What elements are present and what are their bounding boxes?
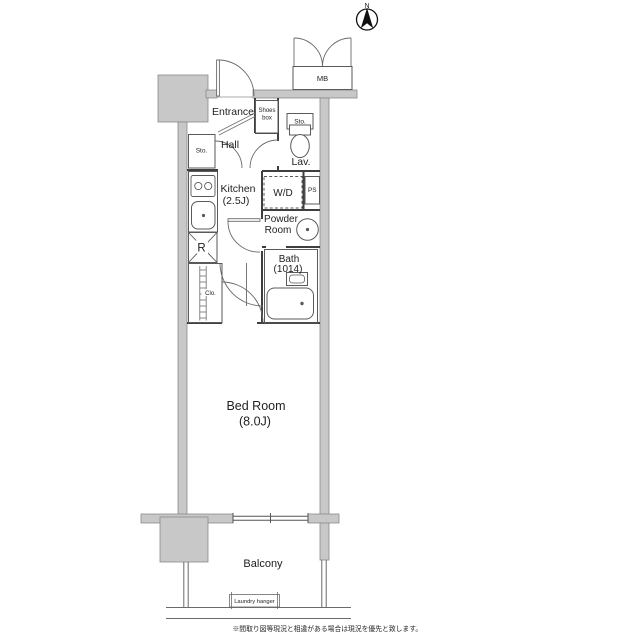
- toilet-tank: [290, 125, 311, 135]
- mb-label: MB: [317, 74, 328, 83]
- floor-plan-image: N: [0, 0, 639, 640]
- fridge-label: R: [197, 243, 205, 255]
- hall-label: Hall: [221, 139, 239, 151]
- compass-north-label: N: [364, 3, 369, 10]
- powder-door-arc: [228, 221, 260, 252]
- bedroom-label-1: Bed Room: [226, 399, 285, 413]
- powder-room-label-1: Powder: [264, 214, 299, 225]
- structural-walls: [141, 75, 357, 562]
- balcony-label: Balcony: [243, 558, 283, 570]
- powder-door-leaf: [228, 219, 260, 222]
- entrance-door-arc: [218, 60, 254, 96]
- powder-basin-drain: [306, 228, 308, 230]
- floor-plan-svg: N: [0, 0, 639, 640]
- bathtub: [267, 288, 314, 319]
- shoes-box-label-2: box: [262, 116, 272, 122]
- kitchen-label-1: Kitchen: [220, 183, 255, 195]
- bedroom-label-2: (8.0J): [239, 415, 271, 429]
- pipe-space-label: PS: [308, 187, 317, 194]
- pillar-top-left: [158, 75, 208, 122]
- pillar-bottom-left: [160, 517, 208, 562]
- entrance-label: Entrance: [212, 106, 254, 118]
- closet-door-arc: [220, 263, 263, 306]
- wall-top-left-segment: [206, 90, 217, 98]
- labels: MB Entrance Shoes box Sto. Sto. Hall Lav…: [195, 74, 422, 633]
- kitchen-label-2: (2.5J): [223, 195, 250, 207]
- lav-door-arc: [250, 140, 278, 168]
- mb-door-arc-right: [323, 38, 352, 67]
- storage-lav-label: Sto.: [294, 119, 306, 126]
- compass: N: [357, 3, 378, 30]
- storage-hall-label: Sto.: [196, 148, 208, 155]
- disclaimer-note: ※間取り図等現況と相違がある場合は現況を優先と致します。: [233, 624, 423, 633]
- kitchen-sink-drain: [202, 214, 204, 216]
- bathtub-drain: [301, 302, 303, 304]
- north-arrow-icon: [361, 8, 373, 28]
- balcony-window: [233, 513, 308, 523]
- wall-left: [178, 122, 187, 515]
- shoes-box-label-1: Shoes: [258, 108, 275, 114]
- washer-dryer-label: W/D: [273, 188, 292, 199]
- entrance-door-leaf: [217, 60, 220, 96]
- wall-right: [320, 98, 329, 560]
- closet-label: Clo.: [205, 291, 216, 297]
- powder-room-label-2: Room: [265, 225, 292, 236]
- laundry-hanger-label: Laundry hanger: [234, 599, 275, 605]
- wall-top-right-segment: [253, 90, 357, 98]
- wall-bottom-right-segment: [308, 514, 339, 523]
- lav-label: Lav.: [291, 156, 310, 168]
- mb-door-arc-left: [294, 38, 323, 67]
- toilet-bowl: [291, 135, 310, 158]
- bath-label-2: (1014): [274, 264, 303, 275]
